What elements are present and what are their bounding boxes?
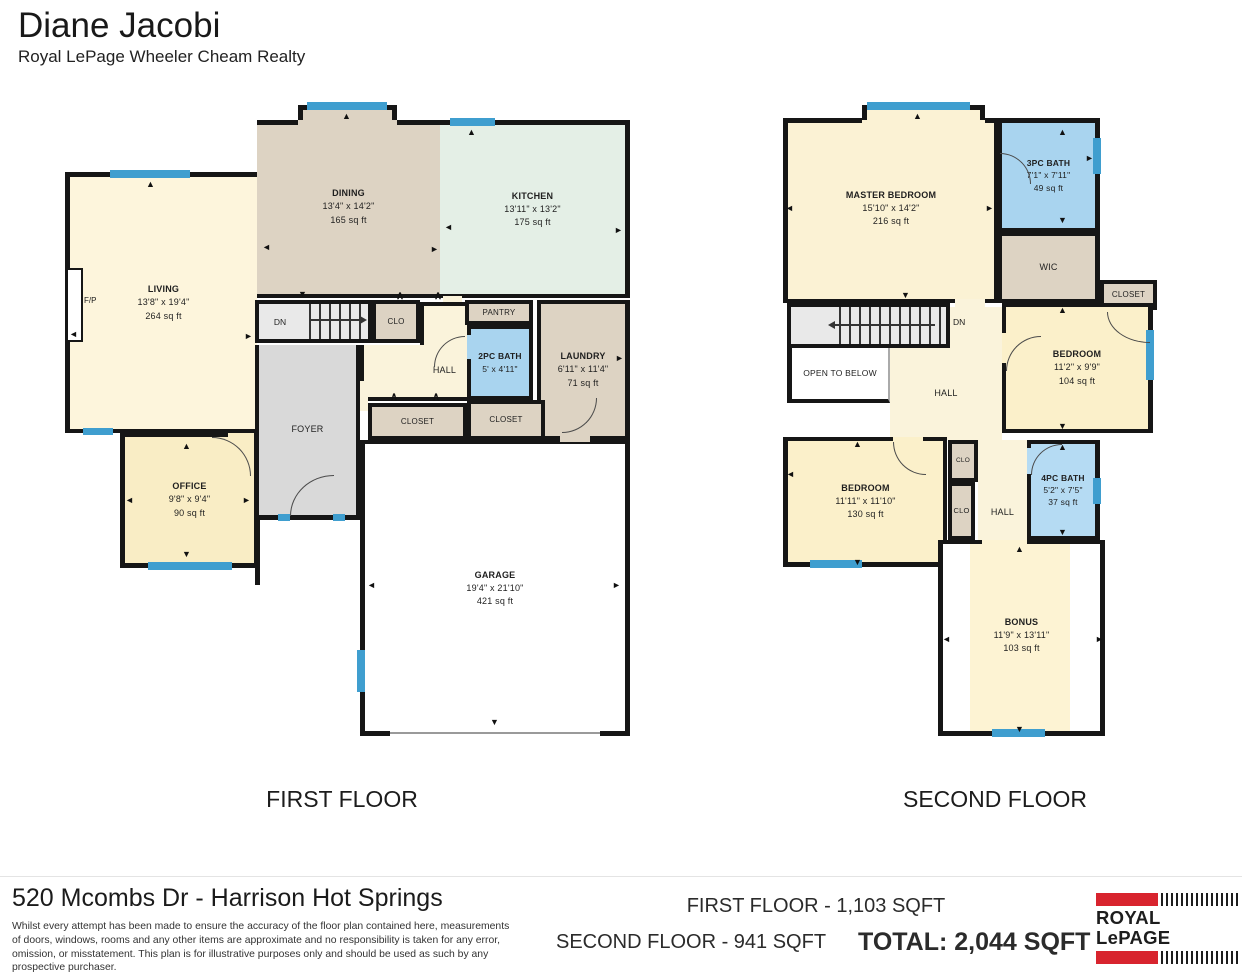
door-opening [467, 335, 473, 359]
door-opening [560, 434, 590, 442]
room-dims: 13'11" x 13'2" [504, 203, 561, 216]
logo-bottom-row [1096, 951, 1240, 964]
direction-arrow: ▼ [853, 558, 862, 567]
room-label: LIVING [148, 283, 179, 296]
wall-segment [783, 118, 862, 123]
room-dims: 6'11" x 11'4" [558, 363, 609, 376]
room-label: CLO [387, 316, 404, 328]
room-dims: 13'8" x 19'4" [138, 296, 190, 309]
room-dims: 5'2" x 7'5" [1043, 484, 1082, 496]
direction-arrow: ▼ [298, 290, 307, 299]
window [83, 428, 113, 435]
room-label: PANTRY [483, 307, 516, 319]
room-area: 175 sq ft [514, 216, 550, 229]
room-area: 49 sq ft [1034, 182, 1063, 194]
direction-arrow: ► [244, 332, 253, 341]
disclaimer-text: Whilst every attempt has been made to en… [12, 920, 520, 975]
direction-arrow: ▲ [1058, 443, 1067, 452]
hall-by-stairs [950, 307, 1002, 348]
direction-arrow: ◄ [942, 635, 951, 644]
direction-arrow: ▼ [901, 291, 910, 300]
royal-lepage-logo: ROYAL LePAGE [1096, 893, 1240, 964]
room-open-to-below: OPEN TO BELOW [787, 348, 890, 403]
room-label: DINING [332, 187, 365, 200]
opening-marker: ∧ [434, 291, 442, 302]
room-area: 104 sq ft [1059, 375, 1095, 388]
agent-name: Diane Jacobi [18, 6, 305, 46]
footer-divider [0, 876, 1242, 877]
room-label: CLO [953, 506, 969, 517]
direction-arrow: ◄ [262, 243, 271, 252]
room-dims: 9'8" x 9'4" [169, 493, 211, 506]
room-closet-hall: CLOSET [368, 403, 467, 440]
wall-segment [938, 540, 982, 544]
room-area: 90 sq ft [174, 507, 205, 520]
direction-arrow: ◄ [69, 330, 78, 339]
room-area: 130 sq ft [847, 508, 883, 521]
room-area: 37 sq ft [1048, 496, 1077, 508]
direction-arrow: ▼ [490, 718, 499, 727]
door-opening [228, 433, 254, 439]
direction-arrow: ► [1095, 635, 1104, 644]
stair-arrow [310, 319, 360, 321]
window-sidelite [333, 514, 345, 521]
direction-arrow: ▼ [1058, 216, 1067, 225]
direction-arrow: ▲ [1058, 306, 1067, 315]
total-sqft: TOTAL: 2,044 SQFT [858, 928, 1090, 957]
room-label: HALL [991, 506, 1014, 519]
window [357, 650, 365, 692]
room-clo: CLO [372, 300, 420, 343]
stair-landing [791, 307, 831, 344]
window-sidelite [278, 514, 290, 521]
room-label: BONUS [1005, 616, 1039, 629]
opening-marker: ∧ [432, 392, 440, 403]
room-pantry: PANTRY [465, 300, 533, 325]
stair-arrow-head [828, 321, 835, 329]
room-hall-upper: HALL [890, 348, 1002, 440]
direction-arrow: ◄ [786, 470, 795, 479]
direction-arrow: ▲ [182, 442, 191, 451]
room-label: GARAGE [475, 569, 516, 582]
direction-arrow: ▲ [853, 440, 862, 449]
direction-arrow: ▼ [1015, 725, 1024, 734]
stair-arrow-head [360, 316, 367, 324]
room-dims: 11'2" x 9'9" [1054, 361, 1100, 374]
direction-arrow: ► [430, 245, 439, 254]
room-bonus: BONUS 11'9" x 13'11" 103 sq ft [938, 540, 1105, 736]
room-2pc-bath: 2PC BATH 5' x 4'11" [467, 325, 533, 400]
porch-wall [255, 517, 260, 585]
room-area: 264 sq ft [145, 310, 181, 323]
direction-arrow: ► [985, 204, 994, 213]
room-dims: 11'9" x 13'11" [994, 629, 1050, 642]
window [450, 118, 495, 126]
room-area: 216 sq ft [873, 215, 909, 228]
room-label: WIC [1039, 261, 1057, 274]
direction-arrow: ▲ [913, 112, 922, 121]
room-label: 2PC BATH [478, 350, 521, 362]
stair-arrow [835, 324, 935, 326]
direction-arrow: ▼ [1058, 422, 1067, 431]
direction-arrow: ◄ [444, 223, 453, 232]
direction-arrow: ► [612, 581, 621, 590]
door-opening [955, 299, 985, 307]
stair-treads [301, 304, 368, 339]
room-label: CLOSET [1112, 289, 1145, 301]
opening-marker: ∧ [390, 392, 398, 403]
room-area: 165 sq ft [330, 214, 366, 227]
room-clo-b: CLO [948, 482, 975, 540]
room-area: 71 sq ft [567, 377, 598, 390]
room-label: LAUNDRY [560, 350, 605, 363]
room-label: KITCHEN [512, 190, 553, 203]
logo-stripes [1161, 951, 1240, 964]
logo-stripes [1161, 893, 1240, 906]
window [1093, 478, 1101, 504]
direction-arrow: ► [242, 496, 251, 505]
room-dims: 11'11" x 11'10" [835, 495, 895, 508]
room-label: MASTER BEDROOM [846, 189, 936, 202]
direction-arrow: ► [1085, 154, 1094, 163]
wall-segment [1027, 540, 1105, 544]
property-address: 520 Mcombs Dr - Harrison Hot Springs [12, 884, 443, 913]
floorplan-page: { "header": { "agent_name": "Diane Jacob… [0, 0, 1242, 960]
room-label: OPEN TO BELOW [803, 367, 877, 379]
window [867, 102, 970, 110]
direction-arrow: ▲ [342, 112, 351, 121]
direction-arrow: ▼ [182, 550, 191, 559]
logo-red-bar [1096, 893, 1158, 906]
direction-arrow: ◄ [367, 581, 376, 590]
room-closet-laundry: CLOSET [467, 400, 545, 440]
room-wic: WIC [998, 232, 1100, 303]
window [110, 170, 190, 178]
room-dims: 7'1" x 7'11" [1027, 169, 1071, 181]
room-label: HALL [934, 387, 957, 400]
direction-arrow: ▲ [467, 128, 476, 137]
direction-arrow: ► [614, 226, 623, 235]
wall-segment [397, 120, 440, 125]
room-area: 103 sq ft [1003, 642, 1039, 655]
room-garage: GARAGE 19'4" x 21'10" 421 sq ft [360, 440, 630, 736]
room-dims: 15'10" x 14'2" [862, 202, 919, 215]
logo-top-row [1096, 893, 1240, 906]
room-dims: 13'4" x 14'2" [323, 200, 375, 213]
direction-arrow: ► [615, 354, 624, 363]
opening-marker: ∧ [396, 291, 404, 302]
room-clo-a: CLO [948, 440, 978, 482]
door-opening [360, 381, 368, 411]
first-floor-caption: FIRST FLOOR [242, 786, 442, 813]
room-label: CLOSET [401, 416, 434, 428]
window [1093, 138, 1101, 174]
room-label: OFFICE [172, 480, 206, 493]
room-dining: DINING 13'4" x 14'2" 165 sq ft [257, 120, 440, 298]
room-label: BEDROOM [841, 482, 889, 495]
logo-red-bar [1096, 951, 1158, 964]
room-label: BEDROOM [1053, 348, 1101, 361]
room-hall-lower: HALL [978, 440, 1027, 543]
room-label: FOYER [291, 423, 323, 436]
direction-arrow: ▲ [146, 180, 155, 189]
direction-arrow: ◄ [785, 204, 794, 213]
door-opening [443, 296, 462, 302]
first-floor-sqft: FIRST FLOOR - 1,103 SQFT [616, 895, 1016, 918]
logo-text: ROYAL LePAGE [1096, 908, 1240, 949]
window [307, 102, 387, 110]
direction-arrow: ◄ [125, 496, 134, 505]
stairs-dn-label: DN [953, 317, 965, 327]
direction-arrow: ▲ [1058, 128, 1067, 137]
room-label: CLOSET [489, 414, 522, 426]
direction-arrow: ▲ [1015, 545, 1024, 554]
direction-arrow: ▼ [1058, 528, 1067, 537]
room-label: 3PC BATH [1027, 157, 1070, 169]
brokerage-name: Royal LePage Wheeler Cheam Realty [18, 47, 305, 67]
room-dims: 5' x 4'11" [482, 363, 518, 375]
window [148, 562, 232, 570]
room-kitchen: KITCHEN 13'11" x 13'2" 175 sq ft [440, 120, 630, 298]
wall-segment [985, 118, 998, 123]
second-floor-sqft: SECOND FLOOR - 941 SQFT [556, 931, 826, 954]
room-stairs-down: DN [255, 300, 372, 343]
room-area: 421 sq ft [477, 595, 513, 608]
first-floor-plan: LIVING 13'8" x 19'4" 264 sq ft DINING 13… [62, 98, 640, 746]
room-master-bedroom: MASTER BEDROOM 15'10" x 14'2" 216 sq ft [783, 118, 998, 303]
room-dims: 19'4" x 21'10" [466, 582, 523, 595]
stairs-dn-label: DN [259, 304, 301, 339]
garage-door-line [390, 732, 600, 734]
second-floor-plan: MASTER BEDROOM 15'10" x 14'2" 216 sq ft … [775, 98, 1165, 746]
header: Diane Jacobi Royal LePage Wheeler Cheam … [18, 6, 305, 67]
second-floor-caption: SECOND FLOOR [895, 786, 1095, 813]
fireplace-label: F/P [84, 296, 96, 305]
room-label: CLO [956, 456, 970, 465]
wall-segment [257, 120, 298, 125]
